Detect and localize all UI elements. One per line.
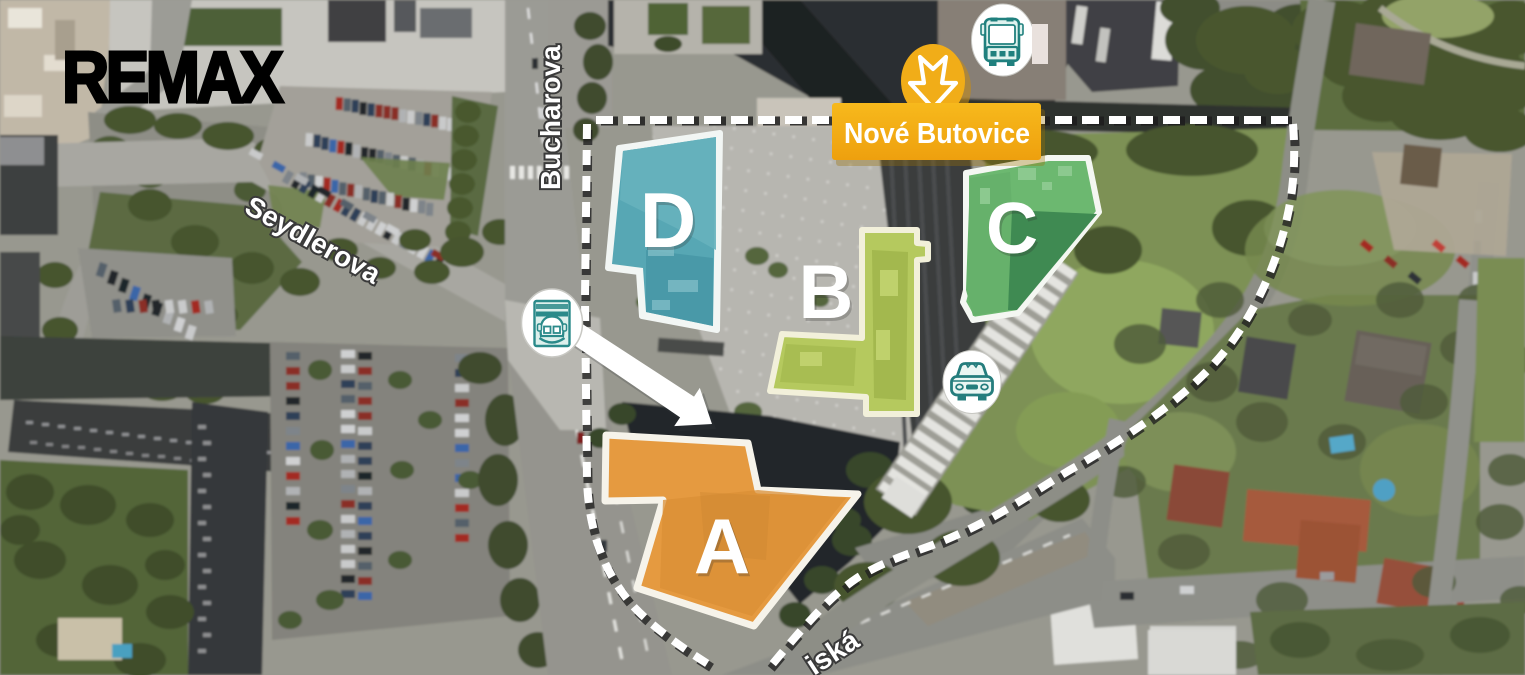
svg-text:Nové Butovice: Nové Butovice <box>844 118 1030 150</box>
svg-text:C: C <box>986 189 1038 269</box>
svg-text:REMAX: REMAX <box>62 38 284 118</box>
svg-text:Bucharova: Bucharova <box>535 45 566 190</box>
svg-text:A: A <box>694 502 750 590</box>
svg-text:D: D <box>640 176 696 264</box>
svg-text:B: B <box>799 250 854 335</box>
